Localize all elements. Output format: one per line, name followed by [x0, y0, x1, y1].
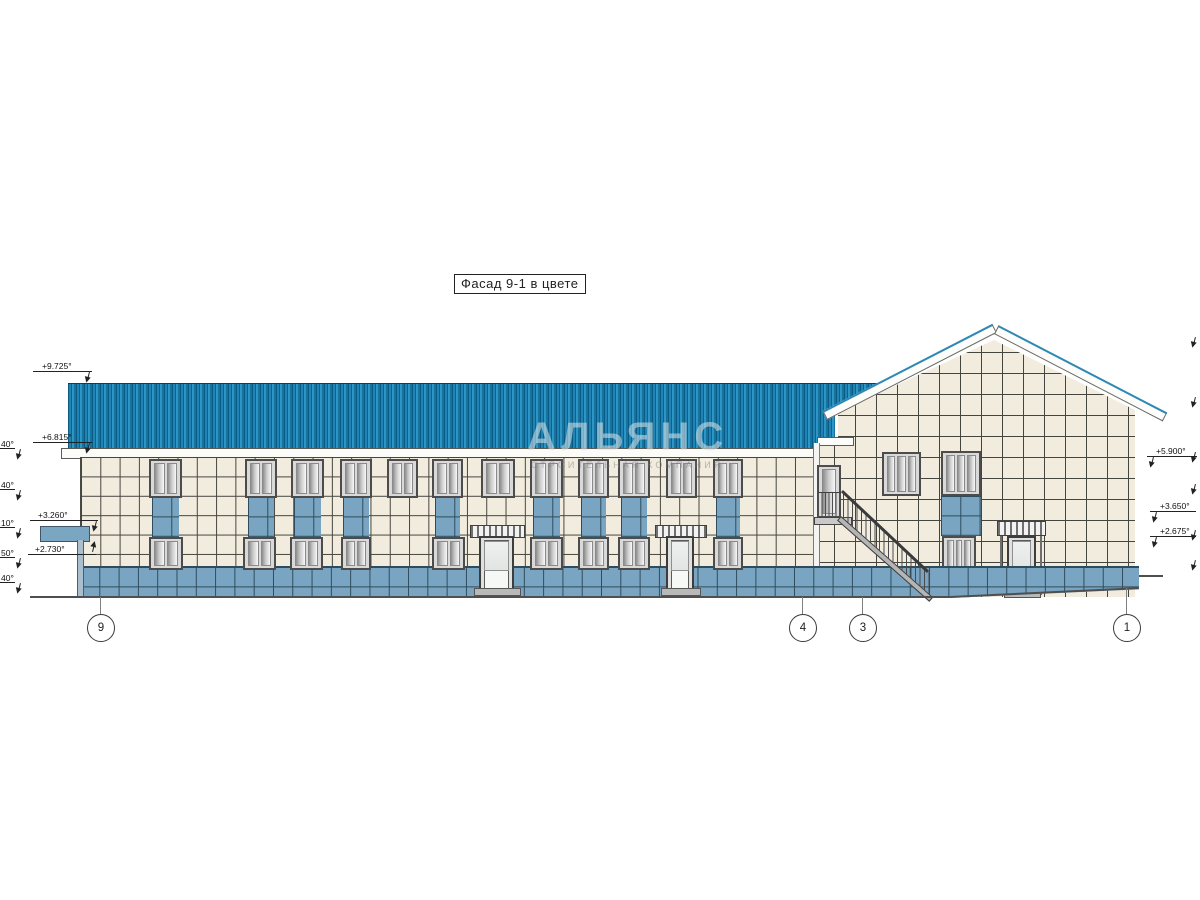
window-pane [729, 541, 738, 566]
window-pane [897, 456, 905, 492]
facade-drawing-sheet: Фасад 9-1 в цвете [0, 0, 1200, 900]
window-pane [309, 463, 320, 494]
window-pane [683, 463, 693, 494]
window-pane [486, 463, 497, 494]
window-pane [449, 463, 459, 494]
window-pane [947, 540, 954, 567]
window-pane [450, 541, 461, 566]
main-roof-corrugated [68, 383, 890, 449]
window-pane [595, 463, 605, 494]
window-pane [262, 463, 272, 494]
elevation-arrow-icon [1193, 484, 1196, 492]
elevation-mark: +3.650° [1160, 501, 1190, 511]
gable-wall-tiles [813, 331, 1163, 597]
window-pane [635, 463, 645, 494]
axis-bubble: 9 [87, 614, 115, 642]
ground-line-right [1139, 575, 1163, 577]
spandrel-panel [533, 497, 560, 537]
spandrel-panel [621, 497, 647, 537]
window [432, 537, 465, 570]
window-pane [357, 541, 366, 566]
window-pane [548, 541, 559, 566]
elevation-mark-line [0, 527, 15, 528]
window-pane [946, 455, 955, 492]
spandrel-panel [294, 497, 321, 537]
window-pane [346, 541, 355, 566]
side-canopy-post [77, 540, 84, 597]
window [942, 536, 976, 571]
window-pane [967, 455, 976, 492]
spandrel-panel [435, 497, 460, 537]
window-pane [392, 463, 402, 494]
spandrel-panel [941, 496, 981, 536]
window [149, 459, 182, 498]
window [149, 537, 183, 570]
window-pane [308, 541, 319, 566]
window-pane [623, 541, 633, 566]
elevation-mark-line [28, 554, 96, 555]
elevation-arrow-icon [87, 372, 90, 380]
window-pane [887, 456, 895, 492]
window-pane [908, 456, 916, 492]
axis-bubble: 3 [849, 614, 877, 642]
elevation-mark: +6.815° [42, 432, 72, 442]
window-pane [437, 541, 448, 566]
drawing-title: Фасад 9-1 в цвете [454, 274, 586, 294]
window-pane [718, 541, 727, 566]
spandrel-panel [581, 497, 606, 537]
entrance-step [474, 588, 521, 596]
window-pane [250, 463, 260, 494]
elevation-mark: +5.900° [1156, 446, 1186, 456]
window-pane [345, 463, 355, 494]
elevation-arrow-icon [18, 583, 21, 591]
spandrel-panel [248, 497, 274, 537]
window [530, 459, 563, 498]
spandrel-panel [152, 497, 179, 537]
elevation-mark-line [33, 442, 92, 443]
window-pane [635, 541, 645, 566]
window [481, 459, 515, 498]
window [341, 537, 371, 570]
axis-bubble: 1 [1113, 614, 1141, 642]
entrance-door [666, 536, 694, 593]
window [245, 459, 277, 498]
window [291, 459, 324, 498]
gable-section [813, 331, 1163, 597]
elevation-mark-line [0, 489, 15, 490]
elevation-arrow-icon [1193, 337, 1196, 345]
entrance-canopy [997, 521, 1046, 536]
base-band-tiles [80, 566, 1139, 598]
axis-line [862, 597, 863, 614]
window-pane [583, 541, 593, 566]
entrance-door [479, 536, 514, 593]
window [941, 451, 981, 496]
window [432, 459, 463, 498]
window-pane [437, 463, 447, 494]
window [618, 537, 650, 570]
elevation-arrow-icon [1193, 560, 1196, 568]
stair-landing-railing [818, 492, 841, 519]
window-pane [167, 463, 178, 494]
ground-line [30, 596, 950, 598]
window-pane [154, 463, 165, 494]
door-glass [484, 541, 509, 571]
gable-eave-band [817, 437, 854, 446]
elevation-arrow-icon [18, 528, 21, 536]
elevation-arrow-icon [18, 449, 21, 457]
window [882, 452, 921, 496]
spandrel-panel [716, 497, 740, 537]
window [243, 537, 276, 570]
elevation-mark: +9.725° [42, 361, 72, 371]
window [578, 537, 609, 570]
elevation-mark-line [0, 448, 15, 449]
spandrel-panel [343, 497, 369, 537]
axis-bubble: 4 [789, 614, 817, 642]
elevation-mark: +3.260° [38, 510, 68, 520]
elevation-mark: +2.730° [35, 544, 65, 554]
elevation-mark: +2.675° [1160, 526, 1190, 536]
axis-line [100, 597, 101, 614]
window-pane [718, 463, 727, 494]
elevation-mark-line [33, 371, 92, 372]
elevation-mark-line [0, 582, 15, 583]
elevation-arrow-icon [18, 490, 21, 498]
window-pane [535, 463, 546, 494]
window-pane [357, 463, 367, 494]
window-pane [623, 463, 633, 494]
window-pane [499, 463, 510, 494]
elevation-mark-line [0, 557, 15, 558]
window-pane [956, 540, 963, 567]
window-pane [535, 541, 546, 566]
window-pane [729, 463, 738, 494]
axis-line [802, 597, 803, 614]
entrance-step [661, 588, 701, 596]
door-glass [671, 541, 689, 571]
window-pane [248, 541, 259, 566]
window [578, 459, 609, 498]
window [666, 459, 697, 498]
window-pane [595, 541, 605, 566]
elevation-arrow-icon [18, 558, 21, 566]
window-pane [167, 541, 178, 566]
window [340, 459, 372, 498]
window [387, 459, 418, 498]
window-pane [957, 455, 966, 492]
axis-line [1126, 588, 1127, 614]
window-pane [261, 541, 272, 566]
elevation-arrow-icon [1193, 397, 1196, 405]
elevation-mark-line [30, 520, 98, 521]
window [530, 537, 563, 570]
window [618, 459, 650, 498]
window-pane [296, 463, 307, 494]
window-pane [671, 463, 681, 494]
window-pane [154, 541, 165, 566]
elevation-arrow-icon [1193, 530, 1196, 538]
window-pane [964, 540, 971, 567]
window-pane [548, 463, 559, 494]
window-pane [404, 463, 414, 494]
window-pane [295, 541, 306, 566]
window [290, 537, 323, 570]
window [713, 537, 743, 570]
window-pane [583, 463, 593, 494]
window [713, 459, 743, 498]
